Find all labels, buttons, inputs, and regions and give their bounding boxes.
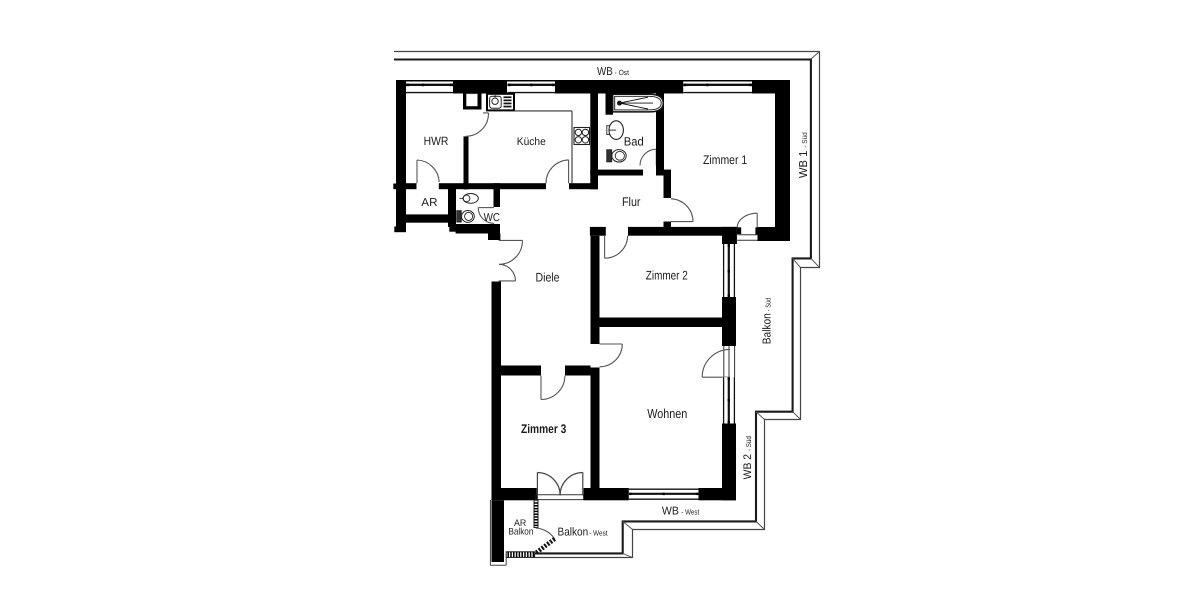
svg-text:WB: WB xyxy=(662,506,679,518)
svg-text:Zimmer 3: Zimmer 3 xyxy=(521,422,566,436)
svg-text:WB 2: WB 2 xyxy=(742,454,754,480)
svg-text:Küche: Küche xyxy=(517,136,546,148)
svg-text:Balkon: Balkon xyxy=(761,313,773,344)
svg-text:AR: AR xyxy=(421,197,437,209)
svg-text:Balkon: Balkon xyxy=(508,527,533,538)
svg-text:- Süd: - Süd xyxy=(801,132,809,147)
svg-text:WB: WB xyxy=(597,66,613,78)
svg-text:Flur: Flur xyxy=(622,195,641,209)
svg-text:- Süd: - Süd xyxy=(745,436,753,451)
svg-text:- West: - West xyxy=(681,508,700,517)
svg-text:Zimmer 1: Zimmer 1 xyxy=(703,153,747,167)
svg-text:- West: - West xyxy=(589,529,608,538)
svg-text:- Süd: - Süd xyxy=(764,298,772,312)
svg-text:Wohnen: Wohnen xyxy=(647,406,687,421)
svg-text:HWR: HWR xyxy=(424,134,449,148)
svg-text:WB 1: WB 1 xyxy=(798,151,810,179)
svg-text:Zimmer 2: Zimmer 2 xyxy=(646,268,688,282)
svg-text:Balkon: Balkon xyxy=(558,527,589,539)
svg-text:- Ost: - Ost xyxy=(615,68,630,77)
svg-text:Diele: Diele xyxy=(536,270,560,284)
svg-text:Bad: Bad xyxy=(624,134,644,148)
svg-text:WC: WC xyxy=(484,212,500,224)
